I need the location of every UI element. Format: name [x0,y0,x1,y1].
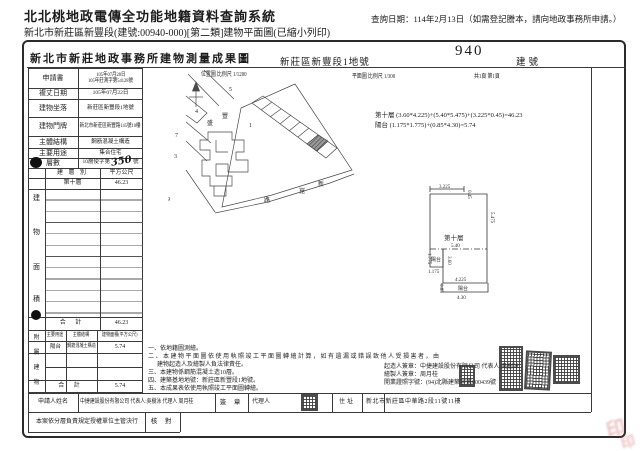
divider [78,393,79,412]
permit-suffix: 號 [133,159,139,165]
note-line: 五、本成果表依使用執照竣工平面圖轉繪。 [148,383,262,392]
subject-unit-hatch [307,135,328,151]
row-value-site: 新莊區新豐段1地號 [78,99,143,117]
agent-label: 代理人 [252,393,298,412]
check-label: 核 對 [145,412,180,432]
divider [28,432,180,433]
room-label: 第十層 [444,233,464,242]
annex-use: 陽台 [45,341,66,353]
section-char: 建 [28,192,45,204]
row-value-application: 105年07月28日 105年莊測字第54128號 [78,68,143,88]
agent-ink-seal [301,394,318,411]
section-char: 物 [28,377,45,389]
query-date: 查詢日期：114年2月13日（如需登記謄本，請向地政事務所申請。） [371,13,621,25]
dim-strip-top: 4.225 [455,278,467,283]
area-formula-balcony: 陽台 (1.175*1.775)+(0.85*4.30)=5.74 [375,119,476,129]
land-number: 新莊區新豐段1地號 [280,54,370,68]
section-char: 建 [28,362,45,374]
address-label: 住址 [332,393,362,412]
ink-seal [553,355,580,384]
street-name-char: 盛 [207,119,213,127]
delegation-text: 本案依分層負責規定授權單位主管決行 [30,412,144,432]
section-char: 物 [28,226,45,238]
dim-strip-w: 4.30 [457,296,466,301]
north-arrow-icon [189,82,203,107]
system-title: 北北桃地政電傳全功能地籍資料查詢系統 [24,6,276,25]
dim-balcony-w: 1.175 [428,270,440,275]
floor-plan: 3.225 0.45 5.475 第十層 5.40 1.775 陽台 1.175… [420,183,506,303]
parcel-number: 5 [229,87,232,93]
office-title: 新北市新莊地政事務所建物測量成果圖 [30,50,251,66]
annex-head-structure: 主體結構 [73,333,89,339]
document-page: 北北桃地政電傳全功能地籍資料查詢系統 查詢日期：114年2月13日（如需登記謄本… [0,0,640,451]
document-subtitle: 新北市新莊區新豐段(建號:00940-000)[第二類]建物平面圖(已縮小列印) [24,24,330,39]
annex-structure: 鋼筋混凝土構造 [67,344,96,350]
row-value-survey-date: 105年07月22日 [78,88,143,99]
annex-head-area: 建物面積(平方公尺) [102,333,138,339]
parcel-number: 3 [174,154,177,160]
parcel-number: 4 [195,109,198,115]
section-char: 積 [28,293,45,305]
balcony-label: 陽台 [431,256,441,263]
building-address: 新北市新莊區新豐路145號10樓 [80,123,141,129]
floor-name: 第十層 [45,178,100,189]
section-char: 屬 [28,347,45,359]
street-name-char: 新 [318,180,324,188]
area-total-label: 合 計 [45,317,100,330]
street-name-char: 崑 [299,188,305,195]
dim-right: 5.475 [489,212,494,224]
row-label-address: 建物門牌 [28,117,78,136]
faint-corner-seal: 印 [619,431,637,451]
area-formula-floor: 第十層 (3.60*4.225)+(5.40*5.475)+(3.225*0.4… [375,109,523,119]
row-label-site: 建物坐落 [28,99,78,117]
license-number-line: 開業證照字號：(94)北縣建築字第000439號 [384,377,496,386]
parcel-number: 9 [168,197,170,203]
area-head-sqm: 平方公尺 [100,168,143,178]
divider [180,412,181,432]
empty-rows [45,189,143,317]
row-label-survey-date: 複丈日期 [28,88,78,99]
section-char: 面 [28,261,45,273]
ink-seal [499,346,523,391]
dim-top: 3.225 [439,185,451,190]
dim-room-width: 5.40 [451,244,460,249]
application-number: 105年莊測字第54128號 [88,78,133,84]
area-total-value: 46.23 [100,317,143,330]
redaction-dot [30,157,42,168]
divider [248,393,249,412]
street-name-char: 路 [264,196,270,204]
building-number-label: 建號 [516,54,541,68]
section-char: 附 [28,332,45,344]
signature-label: 簽 章 [215,393,248,412]
ink-seal [524,350,552,390]
row-value-address: 新北市新莊區新豐路145號10樓 [78,117,143,136]
ink-seal [459,365,475,387]
divider [591,67,592,412]
row-label-application: 申請書 [28,68,78,88]
location-map: 5 4 1 7 3 9 豐 盛 新 崑 路 [168,68,360,222]
dim-strip-h: 0.85 [438,284,443,293]
row-value-structure: 鋼筋混凝土構造 [78,136,143,148]
annex-area: 5.74 [97,341,143,353]
annex-total-label: 合 計 [45,380,97,393]
applicant-value: 中捷建設股份有限公司 代表人:吳樹泳 代理人 周月桂 [80,399,193,406]
redaction-dot [31,310,41,320]
parcel-number: 1 [249,123,252,129]
divider [45,367,143,368]
area-head-floor: 建 層 別 [45,168,100,178]
building-number: 940 [455,43,484,60]
balcony-strip-label: 陽台 [458,285,468,292]
address-value: 新北市新莊區中華路2段11號11樓 [366,399,461,406]
floor-area: 46.23 [100,178,143,189]
page-info: 共1頁 第1頁 [474,71,500,80]
annex-head-use: 主要用途 [47,333,63,339]
dim-step: 0.45 [466,190,471,199]
annex-total-value: 5.74 [97,380,143,393]
parcel-number: 7 [175,133,178,139]
permit-prefix: 10層使字第 [83,159,111,165]
divider [362,393,363,412]
divider [45,168,46,393]
dim-inner: 3.60 [446,256,451,265]
row-label-structure: 主體結構 [28,136,78,148]
row-value-floors: 10層使字第 350 號 [78,155,143,169]
divider [100,168,101,330]
street-name-char: 豐 [222,112,228,120]
applicant-label: 申請人姓名 [28,393,78,412]
